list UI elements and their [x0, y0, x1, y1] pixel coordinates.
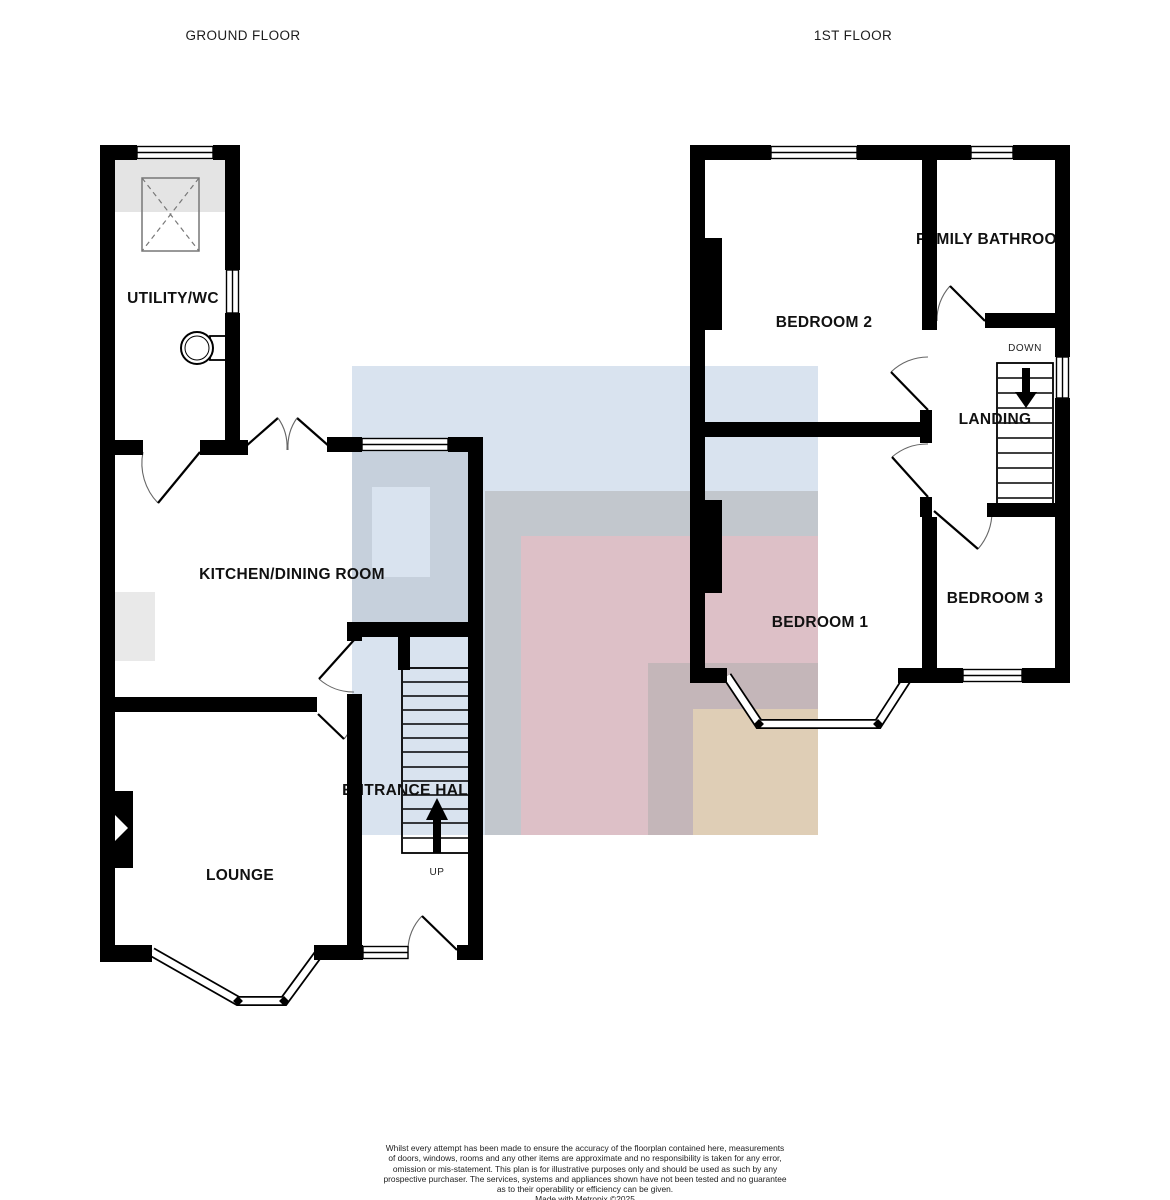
- wall-segment: [857, 145, 971, 160]
- wall-segment: [922, 517, 937, 683]
- door-leaf: [934, 511, 978, 549]
- door-arc: [892, 444, 928, 457]
- door-arc: [278, 418, 287, 450]
- wall-segment: [1022, 668, 1070, 683]
- disclaimer-credit: Made with Metropix ©2025: [0, 1194, 1170, 1200]
- kitchen-left-counter-shading: [113, 592, 155, 661]
- disclaimer-line: Whilst every attempt has been made to en…: [0, 1143, 1170, 1153]
- door-arc: [937, 286, 950, 321]
- double-door-leaf-left: [245, 418, 278, 447]
- stairs-first: [997, 363, 1053, 513]
- wall-segment: [100, 145, 137, 160]
- bedroom3-label: BEDROOM 3: [947, 590, 1044, 607]
- wall-segment: [690, 145, 705, 683]
- door-leaf: [319, 640, 354, 679]
- wall-segment: [200, 440, 248, 455]
- bedroom2-chimney-breast: [705, 238, 722, 330]
- wall-segment: [100, 697, 317, 712]
- ground-floor-title: GROUND FLOOR: [185, 28, 300, 43]
- wall-segment: [690, 668, 727, 683]
- bedroom1-chimney-breast: [705, 500, 722, 593]
- kitchen-label: KITCHEN/DINING ROOM: [199, 566, 385, 583]
- floorplan-page: GROUND FLOOR 1ST FLOOR UTILITY/WC KITCHE…: [0, 0, 1170, 1200]
- wall-segment: [922, 145, 937, 330]
- double-door-leaf-right: [297, 418, 330, 447]
- wall-segment: [898, 668, 963, 683]
- wall-segment: [457, 945, 483, 960]
- entrance-hall-label: ENTRANCE HALL: [342, 782, 478, 799]
- wall-segment: [347, 694, 362, 960]
- wall-segment: [347, 622, 483, 637]
- wall-segment: [920, 497, 932, 517]
- disclaimer-line: omission or mis-statement. This plan is …: [0, 1164, 1170, 1174]
- first-floor-title: 1ST FLOOR: [814, 28, 892, 43]
- bedroom2-label: BEDROOM 2: [776, 314, 873, 331]
- wall-segment: [1055, 398, 1070, 683]
- door-leaf: [318, 714, 344, 739]
- lounge-label: LOUNGE: [206, 867, 274, 884]
- wall-segment: [347, 622, 362, 641]
- door-leaf: [892, 457, 928, 497]
- door-arc: [142, 452, 158, 503]
- wall-segment: [100, 945, 152, 962]
- wall-segment: [327, 437, 362, 452]
- disclaimer-line: as to their operability or efficiency ca…: [0, 1184, 1170, 1194]
- wall-segment: [690, 422, 932, 437]
- wall-segment: [100, 145, 115, 962]
- wall-segment: [314, 945, 363, 960]
- wall-segment: [115, 440, 143, 455]
- disclaimer: Whilst every attempt has been made to en…: [0, 1143, 1170, 1200]
- down-label: DOWN: [1008, 343, 1042, 354]
- floorplan-drawing: GROUND FLOOR 1ST FLOOR UTILITY/WC KITCHE…: [0, 0, 1170, 1200]
- door-arc: [288, 418, 297, 450]
- door-arc: [319, 679, 354, 692]
- door-leaf: [158, 452, 200, 503]
- up-label: UP: [430, 867, 445, 878]
- front-door-leaf: [422, 916, 457, 950]
- wall-segment: [225, 145, 240, 270]
- wall-segment: [920, 410, 932, 443]
- disclaimer-line: of doors, windows, rooms and any other i…: [0, 1153, 1170, 1163]
- wall-segment: [468, 437, 483, 960]
- door-arc: [891, 357, 928, 372]
- toilet-bowl: [181, 332, 213, 364]
- wall-segment: [225, 313, 240, 455]
- wall-segment: [398, 637, 410, 670]
- utility-label: UTILITY/WC: [127, 290, 219, 307]
- utility-worktop-shading: [115, 160, 225, 212]
- lounge-bay-window: [152, 952, 320, 1001]
- wall-segment: [985, 313, 1070, 328]
- door-leaf: [891, 372, 928, 410]
- door-leaf: [950, 286, 985, 321]
- family-bathroom-label: FAMILY BATHROOM: [916, 231, 1070, 248]
- disclaimer-line: prospective purchaser. The services, sys…: [0, 1174, 1170, 1184]
- front-door-arc: [408, 916, 422, 950]
- bedroom1-label: BEDROOM 1: [772, 614, 869, 631]
- wall-segment: [987, 503, 1070, 517]
- landing-label: LANDING: [959, 411, 1032, 428]
